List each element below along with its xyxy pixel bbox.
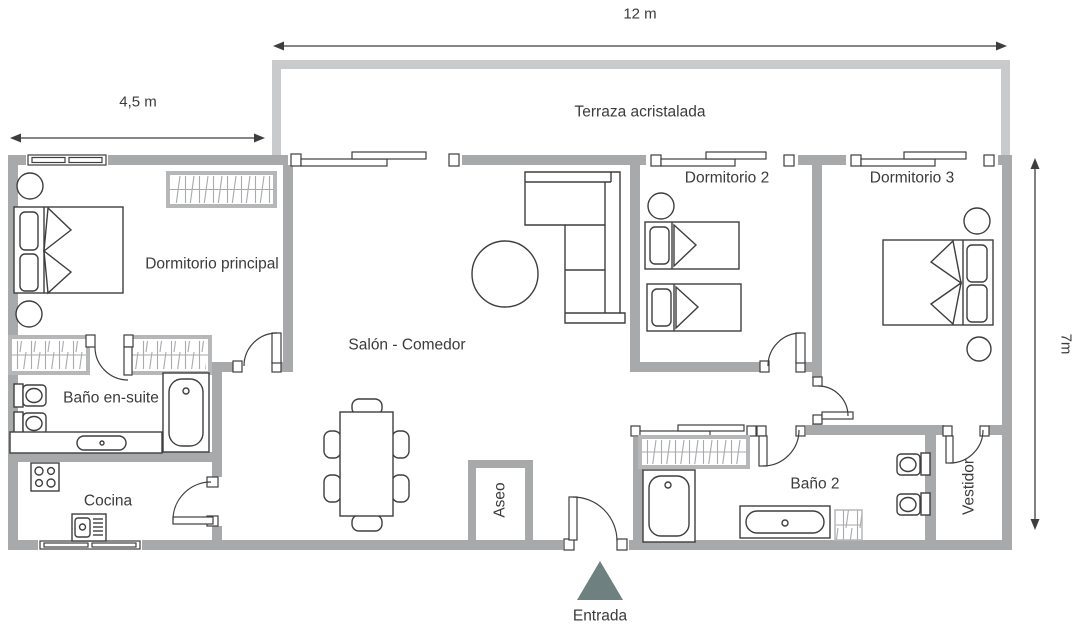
hall-wardrobe (640, 437, 748, 467)
label-kitchen: Cocina (84, 493, 132, 509)
master-bed (14, 207, 123, 293)
bathroom2-radiator (835, 510, 862, 540)
bedroom2-door (760, 333, 805, 372)
ensuite-toilet-1 (14, 384, 46, 407)
dressing-room-door (943, 426, 989, 463)
bathroom2-toilet-2 (897, 493, 930, 515)
dimension-top-label: 12 m (623, 7, 656, 22)
dimension-arrow-7m (1031, 158, 1040, 530)
label-bedroom-3: Dormitorio 3 (870, 170, 954, 186)
bathroom2-bathtub-vertical (643, 470, 695, 542)
ensuite-wardrobe-left (10, 337, 88, 373)
entrance-arrow-icon (577, 561, 623, 600)
kitchen-door (173, 477, 218, 526)
master-bedroom-window (28, 155, 106, 165)
dimension-left-label: 4,5 m (119, 95, 157, 110)
floor-plan-drawing (0, 0, 1082, 632)
dimension-right-label: 7m (1059, 334, 1074, 355)
label-entrance: Entrada (573, 608, 627, 624)
label-living-dining: Salón - Comedor (348, 337, 465, 353)
kitchen-sink (72, 514, 106, 541)
label-toilet: Aseo (492, 482, 508, 517)
kitchen-window (40, 541, 140, 549)
ensuite-vanity (10, 432, 162, 453)
bedroom2-furniture (645, 193, 741, 331)
label-master-bedroom: Dormitorio principal (145, 256, 279, 272)
ensuite-bathtub (163, 373, 209, 452)
sofa (525, 172, 625, 323)
label-bathroom-2: Baño 2 (790, 476, 839, 492)
bathroom2-toilet-1 (897, 453, 930, 475)
label-terrace: Terraza acristalada (575, 104, 706, 120)
master-bedroom-door (233, 333, 281, 372)
floor-plan: 12 m 4,5 m 7m Terraza acristalada Dormit… (0, 0, 1082, 632)
label-dressing-room: Vestidor (961, 459, 977, 515)
kitchen-stove (31, 463, 59, 491)
bedroom3-door (813, 377, 853, 424)
master-wardrobe (168, 173, 275, 206)
master-nightstand-bottom (16, 301, 42, 327)
label-ensuite-bath: Baño en-suite (63, 390, 159, 406)
ensuite-wardrobe-right (130, 337, 210, 373)
bathroom2-door (757, 426, 805, 466)
dimension-arrow-4-5m (10, 134, 265, 143)
ensuite-door (86, 335, 133, 380)
master-nightstand-top (17, 173, 43, 199)
dimension-arrow-12m (273, 42, 1007, 51)
bedroom3-furniture (883, 208, 993, 361)
label-bedroom-2: Dormitorio 2 (685, 170, 769, 186)
dining-table (324, 399, 409, 531)
bathroom2-bathtub-horizontal (740, 506, 830, 538)
round-rug (472, 241, 538, 307)
